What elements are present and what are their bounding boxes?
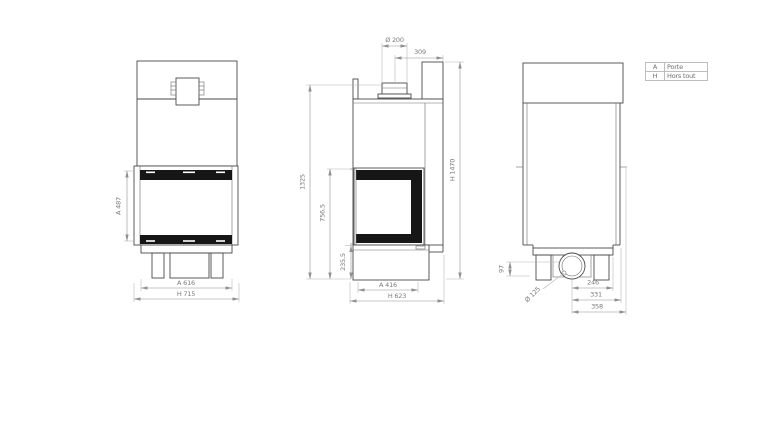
dim-rear-socket-diameter: Ø 125 xyxy=(523,285,542,304)
technical-drawing-page: A 487 A 616 H 715 xyxy=(0,0,781,431)
rear-top-box xyxy=(523,63,623,103)
dim-rear-socket-height: 97 xyxy=(498,265,506,273)
front-flue-collar xyxy=(176,78,199,105)
front-left-leg xyxy=(152,253,164,278)
dim-side-door-depth: A 416 xyxy=(379,281,397,289)
front-right-leg xyxy=(211,253,223,278)
legend-key-h: H xyxy=(646,72,665,81)
front-hood xyxy=(137,61,237,166)
dim-side-flue-to-back: 309 xyxy=(414,48,426,56)
rear-air-socket xyxy=(559,253,585,279)
dim-side-flue-diameter: Ø 200 xyxy=(385,36,404,44)
legend-row-overall: H Hors tout xyxy=(646,72,708,81)
legend-table: A Porte H Hors tout xyxy=(645,62,708,81)
front-center-box xyxy=(170,253,209,278)
dim-rear-socket-to-overall-edge: 358 xyxy=(591,303,603,311)
dim-front-door-height: A 487 xyxy=(115,197,123,215)
side-flue-collar xyxy=(382,83,407,94)
dim-side-base-height: 235,5 xyxy=(339,253,347,271)
dim-side-door-top-height: 756,5 xyxy=(319,204,327,222)
dim-rear-socket-to-plate-edge: 246 xyxy=(587,279,599,287)
rear-left-leg xyxy=(536,255,551,280)
front-view: A 487 A 616 H 715 xyxy=(115,61,240,302)
dim-side-overall-height: H 1470 xyxy=(449,159,457,181)
front-door-bottom-band xyxy=(140,235,232,244)
dim-front-overall-width: H 715 xyxy=(177,290,195,298)
dim-side-flue-height: 1325 xyxy=(299,174,307,190)
rear-right-leg xyxy=(594,255,609,280)
legend-key-a: A xyxy=(646,63,665,72)
side-view: Ø 200 309 1325 756,5 235,5 H 1470 xyxy=(299,36,465,304)
dim-side-overall-depth: H 623 xyxy=(388,292,406,300)
rear-view: 97 Ø 125 246 331 358 xyxy=(498,63,628,315)
legend-row-door: A Porte xyxy=(646,63,708,72)
side-rear-panel xyxy=(422,62,443,99)
front-base-plate xyxy=(141,245,232,253)
dim-front-door-width: A 616 xyxy=(177,279,195,287)
legend-label-porte: Porte xyxy=(665,63,708,72)
dim-rear-socket-to-body-edge: 331 xyxy=(590,291,602,299)
legend-label-hors-tout: Hors tout xyxy=(665,72,708,81)
